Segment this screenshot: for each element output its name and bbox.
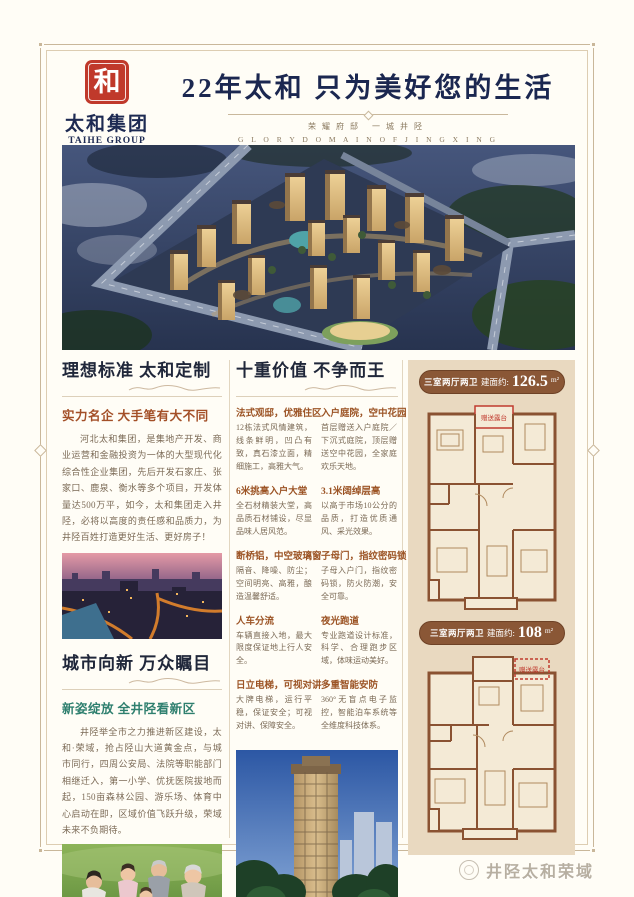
value-heading: 断桥铝，中空玻璃窗 <box>236 548 312 562</box>
value-body: 12栋法式风情建筑，线条鲜明，凹凸有致，真石漆立面，精细施工，高雅大气。 <box>236 422 312 474</box>
floorplan-label-2: 三室两厅两卫 建面约: 108 m² <box>419 621 565 645</box>
title-divider-rule <box>228 114 508 115</box>
floorplan-panel: 三室两厅两卫 建面约: 126.5 m² 赠送露台 三室两 <box>408 360 575 855</box>
value-body: 首层赠送入户庭院／下沉式庭院，顶层赠送空中花园，全家庭欢乐天地。 <box>321 422 397 474</box>
value-item: 入户庭院，空中花园 首层赠送入户庭院／下沉式庭院，顶层赠送空中花园，全家庭欢乐天… <box>321 405 397 474</box>
floorplan-area-word: 建面约: <box>481 376 509 388</box>
subheading-city: 新姿绽放 全井陉看新区 <box>62 698 222 717</box>
floorplan-area-unit: m² <box>545 626 553 635</box>
seal-character: 和 <box>94 67 121 97</box>
floorplan-drawing-2: 赠送露台 <box>421 651 563 841</box>
section-rule <box>236 396 398 397</box>
value-heading: 夜光跑道 <box>321 613 397 627</box>
section-title-values: 十重价值 不争而王 <box>236 356 398 381</box>
floorplan-area-word: 建面约: <box>487 627 515 639</box>
script-flourish <box>127 383 222 393</box>
value-item: 日立电梯，可视对讲 大牌电梯，运行平稳，保证安全；可视对讲、保障安全。 <box>236 677 312 733</box>
poster-subtitle-en: G L O R Y D O M A I N O F J I N G X I N … <box>168 135 568 144</box>
floorplan-area-value: 126.5 <box>512 374 548 390</box>
column-divider <box>402 360 403 838</box>
value-body: 专业跑道设计标准，科学、合理跑步区域，体味运动美好。 <box>321 630 397 669</box>
footer-brand-name: 井陉太和荣域 <box>486 858 594 882</box>
value-item: 法式观邸，优雅住区 12栋法式风情建筑，线条鲜明，凹凸有致，真石漆立面，精细施工… <box>236 405 312 474</box>
taihe-seal-icon: 和 <box>85 60 129 104</box>
value-item: 子母门，指纹密码锁 子母入户门，指纹密码锁，防火防潮，安全可靠。 <box>321 548 397 604</box>
taihe-logo: 和 太和集团 TAIHE GROUP <box>62 60 152 146</box>
section-rule <box>62 689 222 690</box>
section-rule <box>62 396 222 397</box>
ideal-body-text: 河北太和集团，是集地产开发、商业运营和金融投资为一体的大型现代化综合性企业集团，… <box>62 431 222 546</box>
floorplan-type: 三室两厅两卫 <box>430 627 484 639</box>
city-body-text: 井陉举全市之力推进新区建设，太和·荣域，抢占陉山大道黄金点，与城市同行，四周公安… <box>62 724 222 839</box>
aerial-rendering-image <box>62 145 575 350</box>
value-item: 3.1米阔绰层高 以高于市场10公分的品质，打造优质通风、采光效果。 <box>321 483 397 539</box>
frame-corner-ornament <box>37 41 44 48</box>
logo-name-cn: 太和集团 <box>62 109 152 136</box>
value-item: 夜光跑道 专业跑道设计标准，科学、合理跑步区域，体味运动美好。 <box>321 613 397 669</box>
floorplan-area-unit: m² <box>551 375 559 384</box>
script-flourish <box>127 676 222 686</box>
left-column: 理想标准 太和定制 实力名企 大手笔有大不同 河北太和集团，是集地产开发、商业运… <box>62 356 222 897</box>
value-body: 全石材精装大堂，高品质石材铺设，尽显品味人居风范。 <box>236 500 312 539</box>
footer: 井陉太和荣域 <box>40 858 594 882</box>
frame-corner-ornament <box>37 847 44 854</box>
city-dusk-photo <box>62 553 222 639</box>
floorplan-area-value: 108 <box>518 625 542 641</box>
value-heading: 日立电梯，可视对讲 <box>236 677 312 691</box>
gift-terrace-label: 赠送露台 <box>519 665 545 674</box>
footer-emblem-icon <box>459 860 479 880</box>
value-body: 大牌电梯，运行平稳，保证安全；可视对讲、保障安全。 <box>236 694 312 733</box>
values-col-left: 法式观邸，优雅住区 12栋法式风情建筑，线条鲜明，凹凸有致，真石漆立面，精细施工… <box>236 405 312 742</box>
value-heading: 3.1米阔绰层高 <box>321 483 397 497</box>
section-title-city: 城市向新 万众瞩目 <box>62 649 222 674</box>
value-body: 子母入户门，指纹密码锁，防火防潮，安全可靠。 <box>321 565 397 604</box>
header-title-block: 22年太和 只为美好您的生活 荣耀府邸 一城井陉 G L O R Y D O M… <box>168 66 568 144</box>
value-item: 多重智能安防 360°无盲点电子监控，智能泊车系统等全维度科技体系。 <box>321 677 397 733</box>
values-grid: 法式观邸，优雅住区 12栋法式风情建筑，线条鲜明，凹凸有致，真石漆立面，精细施工… <box>236 405 398 742</box>
frame-corner-ornament <box>590 41 597 48</box>
value-body: 隔音、降噪、防尘；空间明亮、高雅，酿造温馨舒适。 <box>236 565 312 604</box>
value-item: 断桥铝，中空玻璃窗 隔音、降噪、防尘；空间明亮、高雅，酿造温馨舒适。 <box>236 548 312 604</box>
poster-page: 和 太和集团 TAIHE GROUP 22年太和 只为美好您的生活 荣耀府邸 一… <box>0 0 634 897</box>
script-flourish <box>303 383 398 393</box>
poster-subtitle-cn: 荣耀府邸 一城井陉 <box>168 121 568 132</box>
poster-title: 22年太和 只为美好您的生活 <box>168 66 568 105</box>
middle-column: 十重价值 不争而王 法式观邸，优雅住区 12栋法式风情建筑，线条鲜明，凹凸有致，… <box>236 356 398 897</box>
value-heading: 人车分流 <box>236 613 312 627</box>
floorplan-drawing-1: 赠送露台 <box>421 400 563 612</box>
value-body: 以高于市场10公分的品质，打造优质通风、采光效果。 <box>321 500 397 539</box>
value-heading: 子母门，指纹密码锁 <box>321 548 397 562</box>
values-col-right: 入户庭院，空中花园 首层赠送入户庭院／下沉式庭院，顶层赠送空中花园，全家庭欢乐天… <box>321 405 397 742</box>
value-item: 人车分流 车辆直接入地，最大限度保证地上行人安全。 <box>236 613 312 669</box>
floorplan-type: 三室两厅两卫 <box>424 376 478 388</box>
value-heading: 多重智能安防 <box>321 677 397 691</box>
subheading-ideal: 实力名企 大手笔有大不同 <box>62 405 222 424</box>
value-item: 6米挑高入户大堂 全石材精装大堂，高品质石材铺设，尽显品味人居风范。 <box>236 483 312 539</box>
value-heading: 6米挑高入户大堂 <box>236 483 312 497</box>
value-body: 车辆直接入地，最大限度保证地上行人安全。 <box>236 630 312 669</box>
value-heading: 法式观邸，优雅住区 <box>236 405 312 419</box>
column-divider <box>229 360 230 838</box>
floorplan-label-1: 三室两厅两卫 建面约: 126.5 m² <box>419 370 565 394</box>
value-heading: 入户庭院，空中花园 <box>321 405 397 419</box>
gift-terrace-label: 赠送露台 <box>481 413 507 422</box>
section-title-ideal: 理想标准 太和定制 <box>62 356 222 381</box>
value-body: 360°无盲点电子监控，智能泊车系统等全维度科技体系。 <box>321 694 397 733</box>
frame-corner-ornament <box>590 847 597 854</box>
